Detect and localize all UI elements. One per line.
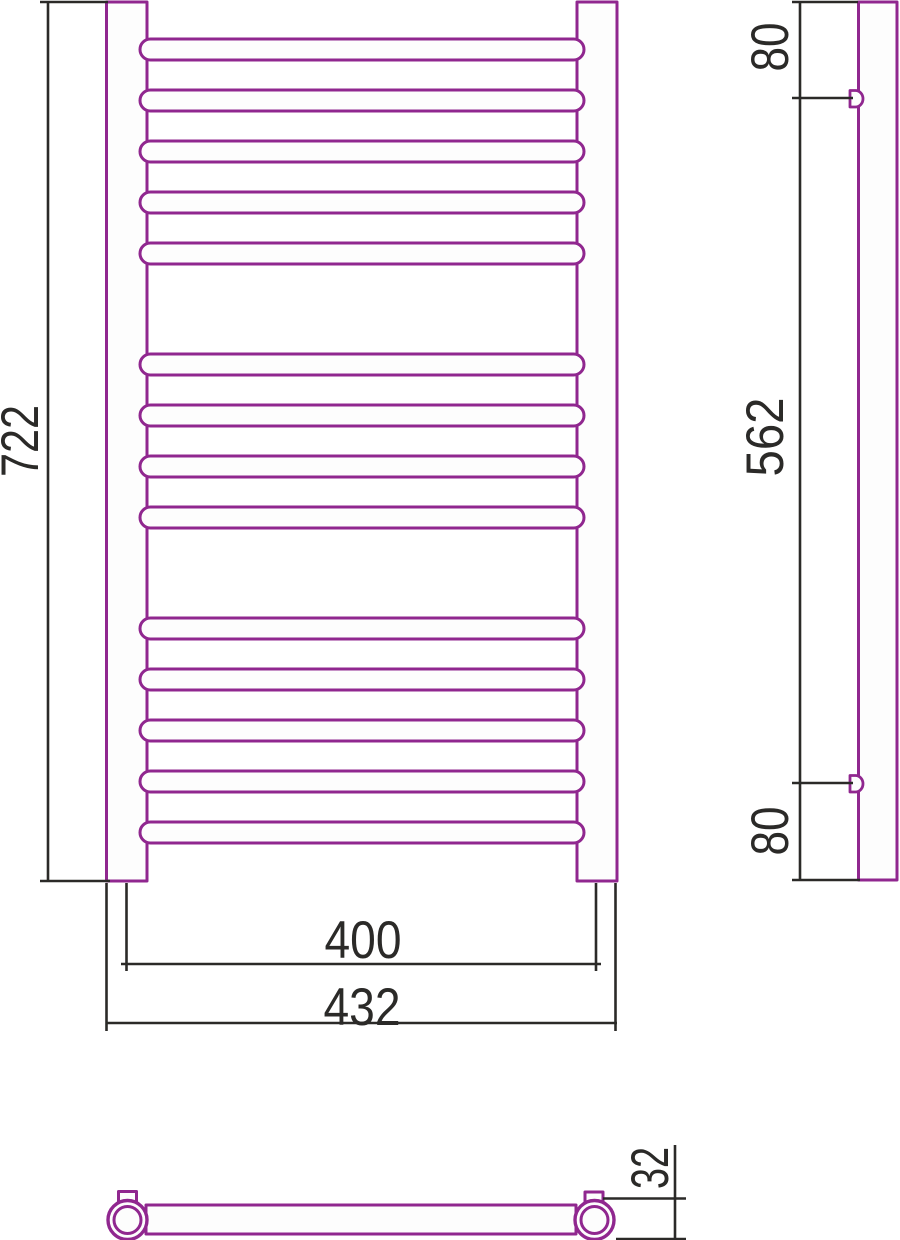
rung (140, 507, 584, 528)
height-dimension-label: 722 (0, 405, 50, 477)
rung (140, 141, 584, 162)
left-vertical-tube (107, 2, 148, 881)
rung (140, 822, 584, 843)
rung (140, 354, 584, 375)
side-dimensions: 80 562 80 (736, 2, 860, 880)
right-tube-section-inner (581, 1207, 608, 1234)
side-view: 80 562 80 (736, 2, 897, 880)
rung (140, 90, 584, 111)
rung (140, 243, 584, 264)
overall-width-dimension-label: 432 (324, 978, 401, 1037)
rung (140, 456, 584, 477)
top-offset-dimension-label: 80 (741, 23, 800, 72)
height-dimension: 722 (0, 2, 110, 881)
rung (140, 669, 584, 690)
rung (140, 618, 584, 639)
bottom-offset-dimension-label: 80 (741, 807, 800, 856)
bottom-view: 32 (108, 1145, 686, 1240)
horizontal-tube (146, 1205, 576, 1234)
side-tube (859, 2, 898, 880)
towel-rail-technical-drawing: 722 400 432 80 562 (0, 0, 900, 1240)
right-vertical-tube (577, 2, 617, 881)
rung (140, 192, 584, 213)
left-tube-section-inner (114, 1207, 141, 1234)
rail-spacing-dimension: 400 (121, 883, 601, 971)
rung (140, 720, 584, 741)
front-view: 722 400 432 (0, 2, 617, 1037)
rail-spacing-dimension-label: 400 (325, 911, 402, 970)
rung (140, 405, 584, 426)
rung (140, 39, 584, 60)
tube-diameter-dimension: 32 (603, 1145, 686, 1240)
rung (140, 771, 584, 792)
bracket-span-dimension-label: 562 (736, 398, 795, 477)
tube-diameter-dimension-label: 32 (621, 1147, 680, 1189)
